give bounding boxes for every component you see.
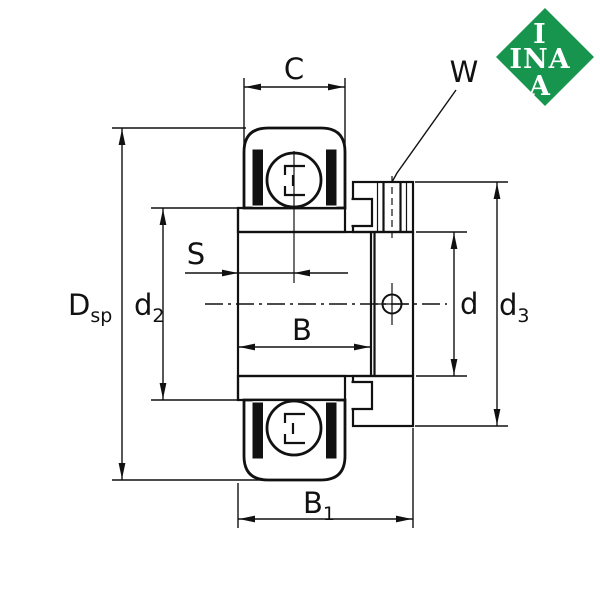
seal-bottom-left — [253, 403, 264, 459]
dim-C: C — [244, 52, 345, 152]
collar-notch-bottom — [352, 382, 373, 409]
bearing-cross-section — [205, 128, 447, 480]
seal-top-right — [326, 150, 337, 206]
bearing-dimension-drawing: C W S B B1 — [0, 0, 600, 600]
page: C W S B B1 — [0, 0, 600, 600]
collar-notch-top — [352, 199, 373, 226]
dim-W: W — [392, 55, 478, 182]
dim-label-B: B — [292, 313, 312, 347]
dim-label-S: S — [187, 237, 205, 271]
seal-top-left — [253, 150, 264, 206]
dim-S: S — [185, 237, 348, 276]
ina-logo-text-bottom: A — [528, 71, 551, 102]
dim-label-B1: B1 — [303, 486, 335, 525]
seal-bottom-right — [326, 403, 337, 459]
dim-B: B — [238, 313, 371, 350]
inner-ring-top — [238, 208, 345, 232]
ina-logo: I INA A — [496, 8, 594, 106]
dim-label-Dsp: Dsp — [68, 288, 112, 327]
dim-label-W: W — [450, 55, 479, 89]
dim-label-d2: d2 — [134, 288, 165, 327]
inner-ring-bottom — [238, 376, 345, 400]
dim-label-C: C — [284, 52, 304, 86]
dim-label-d3: d3 — [499, 288, 530, 327]
dim-label-d: d — [460, 287, 478, 321]
